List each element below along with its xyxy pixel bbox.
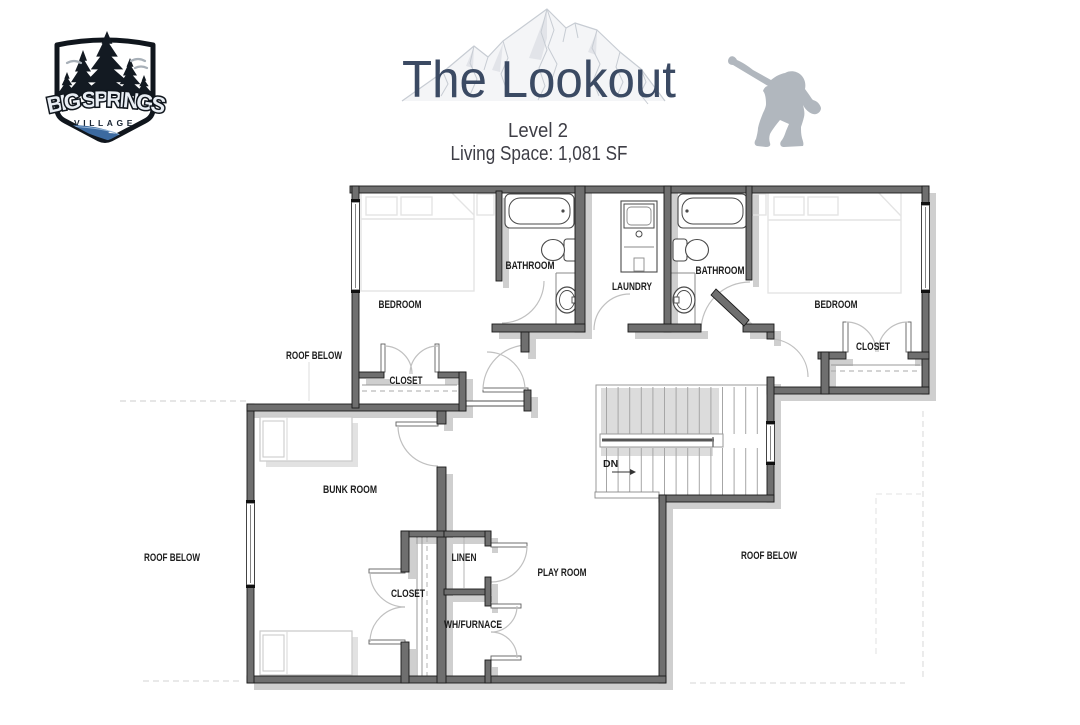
svg-text:BEDROOM: BEDROOM <box>815 299 858 311</box>
svg-text:LINEN: LINEN <box>452 552 477 564</box>
svg-text:BATHROOM: BATHROOM <box>696 265 745 277</box>
svg-text:BATHROOM: BATHROOM <box>506 260 555 272</box>
svg-text:DN: DN <box>603 458 618 470</box>
svg-text:CLOSET: CLOSET <box>856 341 890 353</box>
svg-text:BEDROOM: BEDROOM <box>379 299 422 311</box>
svg-text:The Lookout: The Lookout <box>402 51 677 109</box>
svg-text:LAUNDRY: LAUNDRY <box>612 281 652 293</box>
svg-text:WH/FURNACE: WH/FURNACE <box>444 619 502 631</box>
svg-text:ROOF BELOW: ROOF BELOW <box>286 350 342 362</box>
svg-text:PLAY ROOM: PLAY ROOM <box>538 567 587 579</box>
svg-text:Level 2: Level 2 <box>508 120 568 142</box>
svg-text:CLOSET: CLOSET <box>391 588 425 600</box>
svg-text:ROOF BELOW: ROOF BELOW <box>741 550 797 562</box>
svg-text:BUNK ROOM: BUNK ROOM <box>323 484 377 496</box>
svg-text:CLOSET: CLOSET <box>390 375 423 387</box>
svg-text:Living Space: 1,081 SF: Living Space: 1,081 SF <box>451 143 628 165</box>
svg-text:ROOF BELOW: ROOF BELOW <box>144 552 200 564</box>
